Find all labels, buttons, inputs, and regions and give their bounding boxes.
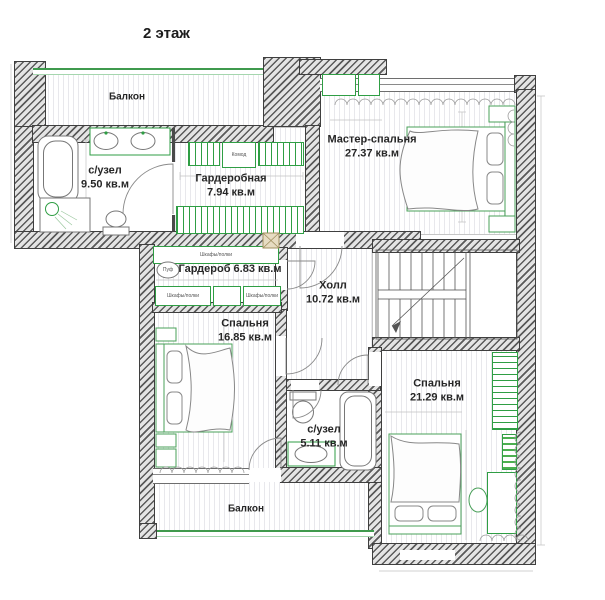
master-pillow-1 <box>487 133 503 165</box>
curtain-bedroom3-right <box>515 432 521 540</box>
room-label-balcony-bottom: Балкон <box>228 503 264 516</box>
bedroom2-nightstand-top <box>156 328 176 341</box>
room-label-bedroom2: Спальня 16.85 кв.м <box>218 317 272 346</box>
plan-graphics <box>0 0 605 600</box>
sink1-left-faucet <box>104 131 107 134</box>
bedroom2-dresser <box>156 449 176 467</box>
toilet2-tank <box>290 392 316 400</box>
floor-plan: 2 этаж Балкон с/узел 9.50 кв.м Гардеробн… <box>0 0 605 600</box>
bedroom2-pillow-2 <box>167 392 182 424</box>
bedroom2-bed <box>156 328 235 467</box>
room-label-hall: Холл 10.72 кв.м <box>306 279 360 308</box>
bedroom3-bed <box>389 434 487 534</box>
beds <box>156 106 515 534</box>
bedroom3-chair <box>469 488 487 512</box>
shaft-marker <box>263 233 279 248</box>
room-label-dressing: Гардеробная 7.94 кв.м <box>195 172 266 201</box>
room-label-bath1: с/узел 9.50 кв.м <box>81 164 129 193</box>
bedroom3-blanket <box>391 436 461 502</box>
master-nightstand-bottom <box>489 216 515 232</box>
door-bath1 <box>123 164 173 214</box>
sink1-right-faucet <box>141 131 144 134</box>
master-nightstand-top <box>489 106 515 122</box>
sink1-left-basin <box>94 133 118 150</box>
furniture-label-shelves-top: Шкафы/полки <box>200 252 232 258</box>
bathtub2-inner <box>345 396 372 466</box>
page-title: 2 этаж <box>143 25 190 42</box>
bedroom3-pillow-2 <box>428 506 456 521</box>
door-bedroom3 <box>338 355 368 385</box>
bathtub1-inner <box>44 141 73 197</box>
shower-tray <box>40 198 90 232</box>
master-pillow-2 <box>487 172 503 204</box>
curtain-bedroom2-window <box>160 467 244 473</box>
bedroom2-pillow-1 <box>167 351 182 383</box>
door-bedroom2 <box>286 338 322 374</box>
bedroom3-pillow-1 <box>395 506 423 521</box>
room-label-wardrobe: Гардероб 6.83 кв.м <box>179 262 282 276</box>
sink1-right-basin <box>131 133 155 150</box>
bedroom2-blanket <box>186 346 235 432</box>
furniture-label-dresser: Комод <box>232 152 247 158</box>
bedroom3-bed-headboard <box>389 526 461 534</box>
toilet1-tank <box>103 227 129 235</box>
curtain-master-top <box>335 99 515 105</box>
bedroom2-nightstand-bottom <box>156 434 176 447</box>
furniture-label-pouf: Пуф <box>163 267 173 273</box>
furniture-label-shelves-left: Шкафы/полки <box>167 293 199 299</box>
bedroom2-bed-headboard <box>156 344 164 432</box>
staircase <box>376 250 517 339</box>
shower-head-icon <box>46 203 59 216</box>
master-bed <box>400 106 515 232</box>
room-label-balcony-top: Балкон <box>109 91 145 104</box>
room-label-bedroom3: Спальня 21.29 кв.м <box>410 377 464 406</box>
room-label-bath2: с/узел 5.11 кв.м <box>300 423 347 452</box>
door-balcony <box>249 438 281 470</box>
room-label-master: Мастер-спальня 27.37 кв.м <box>327 133 416 162</box>
furniture-label-shelves-right: Шкафы/полки <box>246 293 278 299</box>
